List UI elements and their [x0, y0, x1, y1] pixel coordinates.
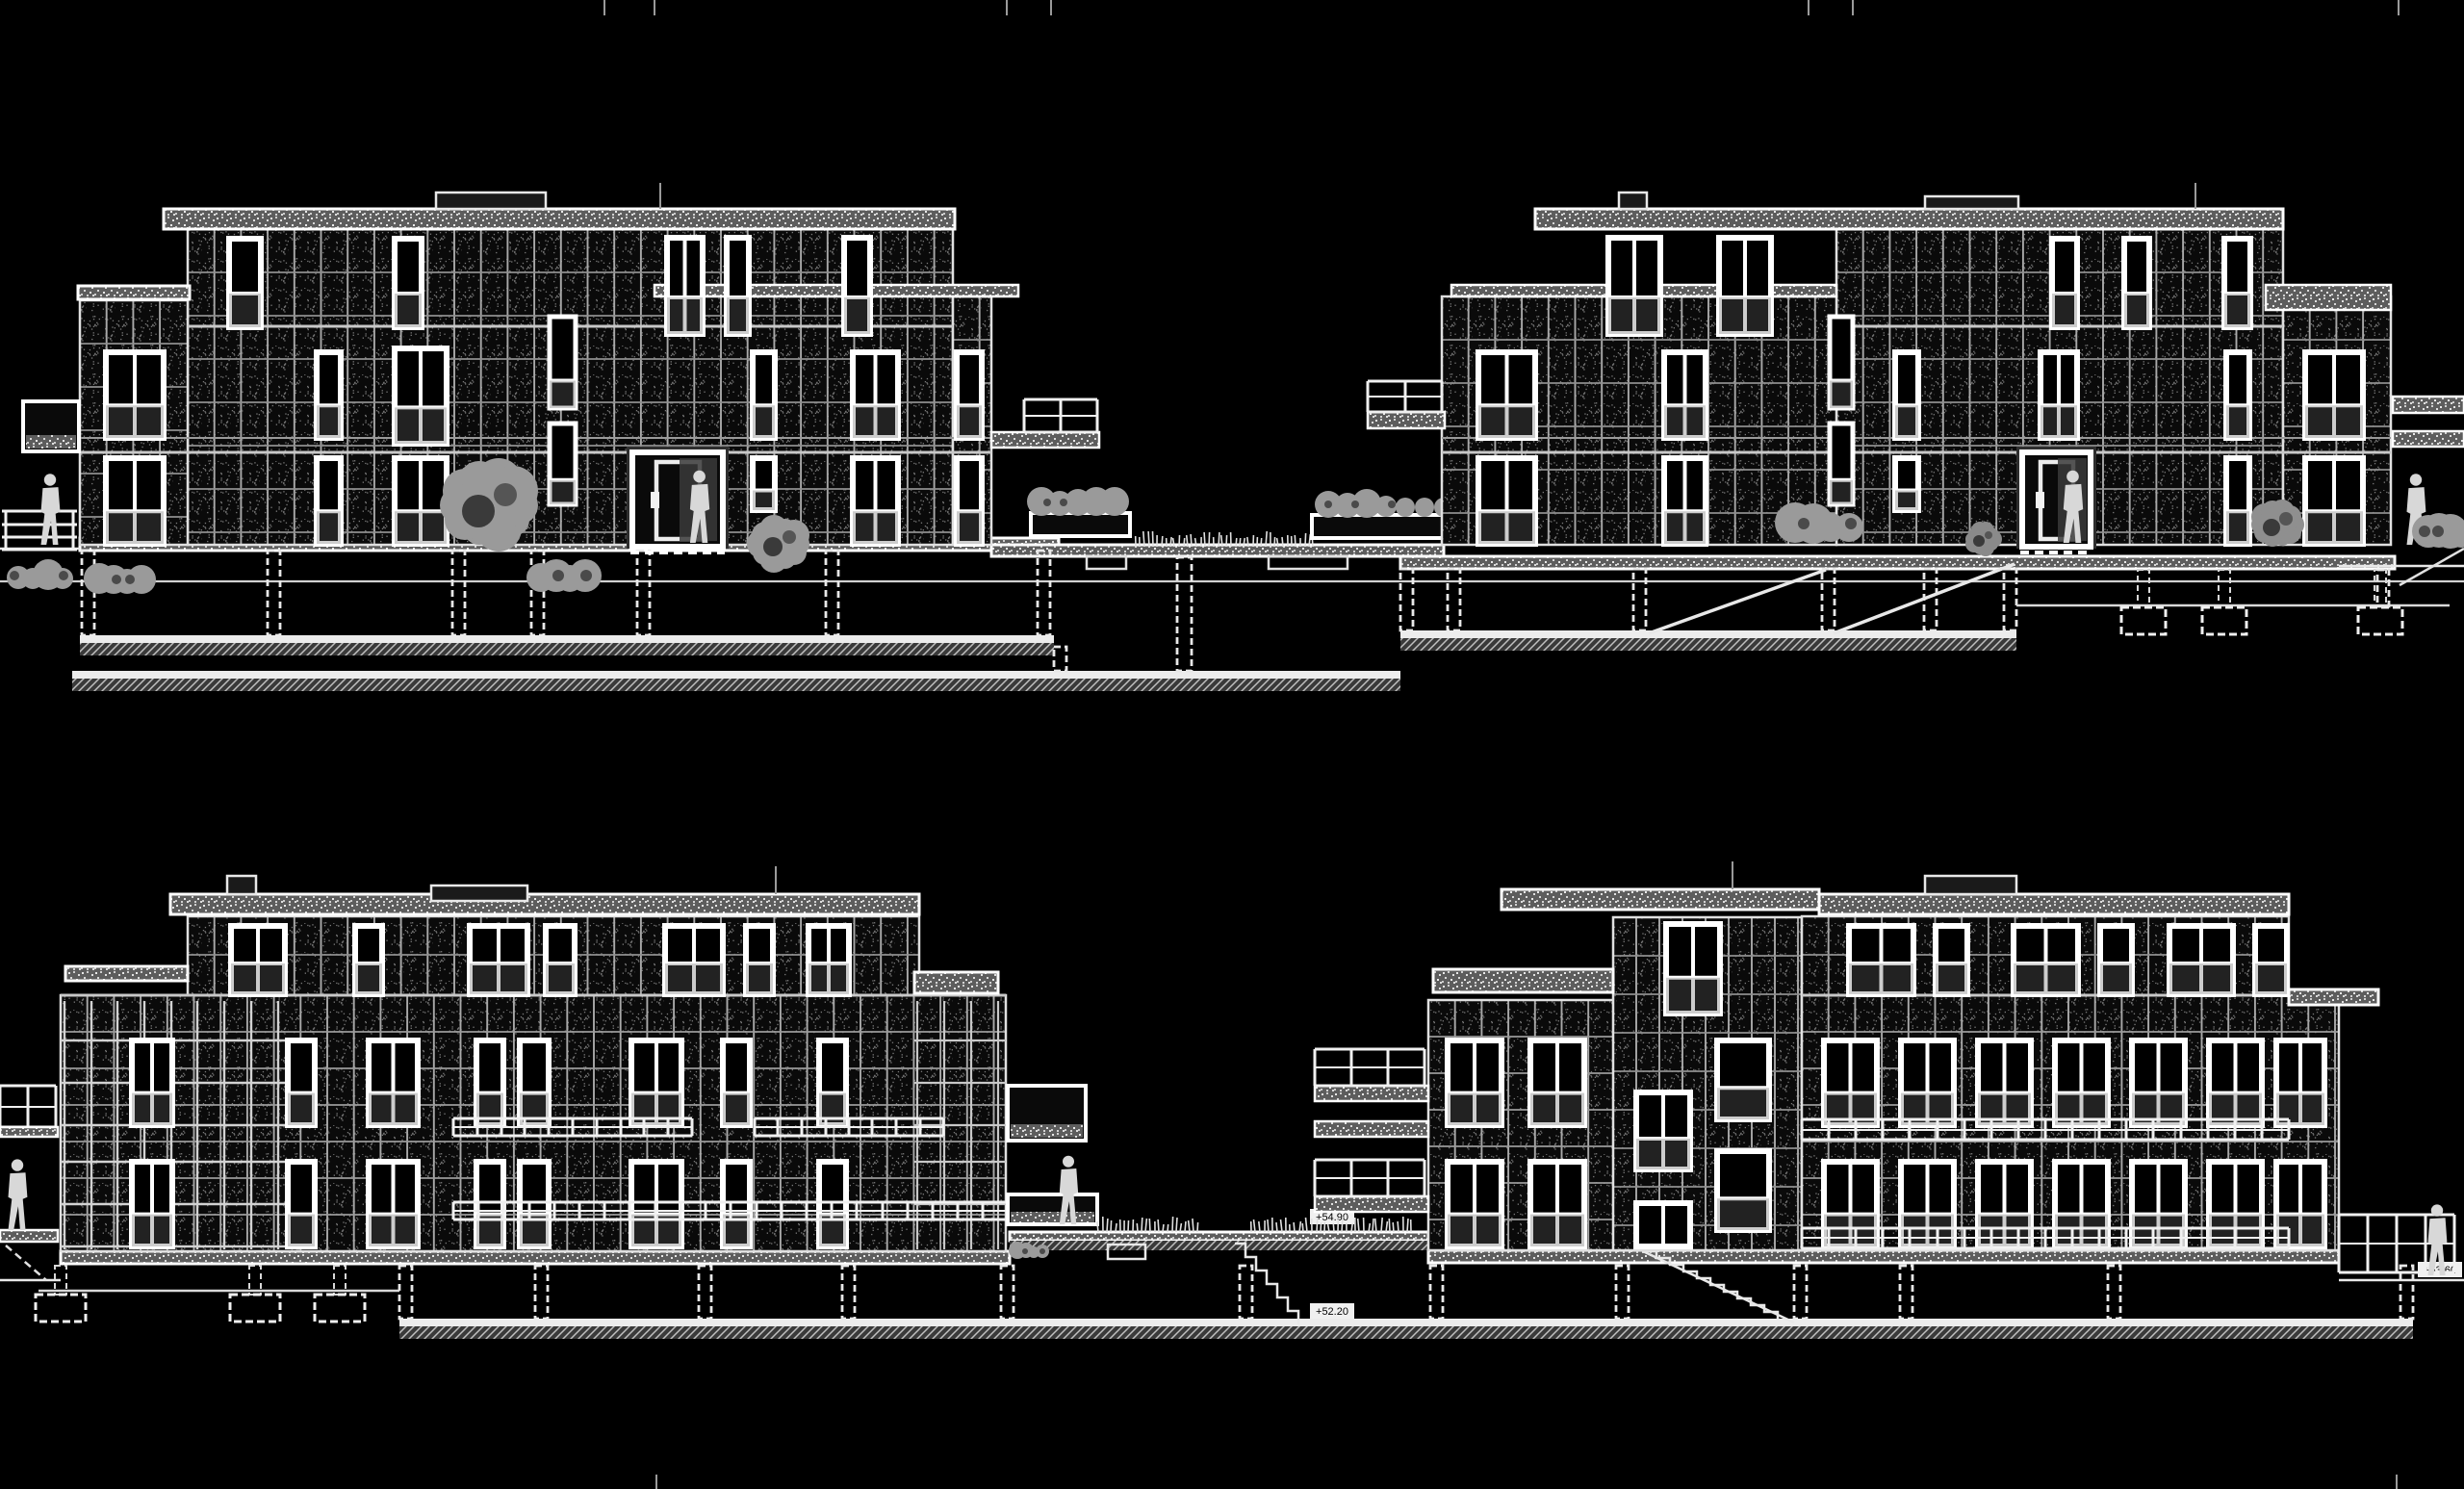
svg-text:+54.90: +54.90 [1316, 1212, 1348, 1223]
svg-text:+52.20: +52.20 [1316, 1306, 1348, 1318]
